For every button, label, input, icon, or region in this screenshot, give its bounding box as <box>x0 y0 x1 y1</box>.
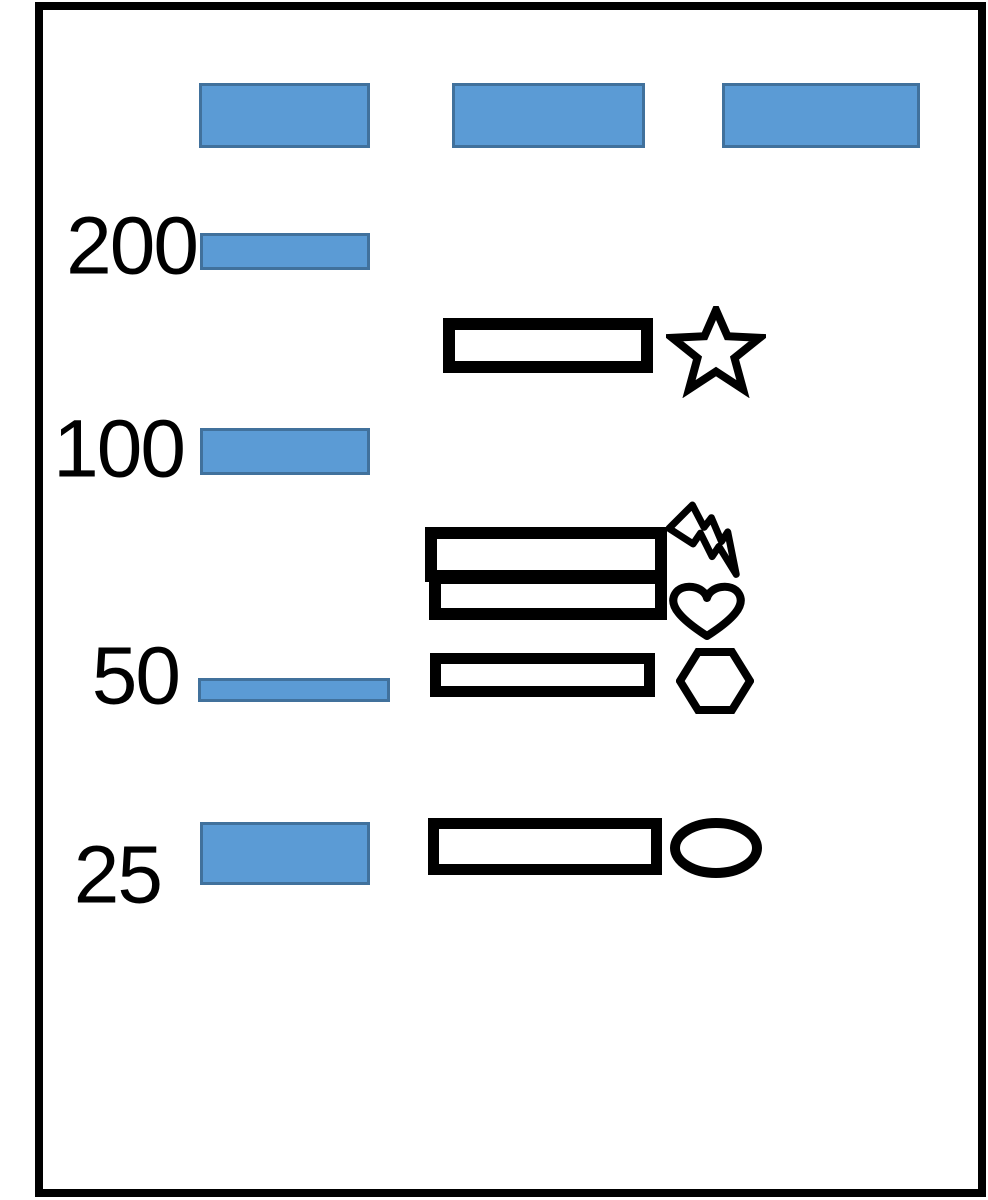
ladder-band-50 <box>198 678 390 702</box>
sample-band-ellipse <box>428 818 662 875</box>
ladder-band-25 <box>200 822 370 885</box>
ladder-label-50: 50 <box>92 635 179 717</box>
well-lane-3 <box>722 83 920 148</box>
sample-band-heart <box>429 572 667 620</box>
lightning-bolt-icon <box>662 498 756 592</box>
well-lane-1 <box>199 83 370 148</box>
ellipse-icon <box>668 816 764 880</box>
gel-electrophoresis-diagram: 2001005025 <box>0 0 988 1200</box>
hexagon-icon <box>676 646 754 716</box>
sample-band-hexagon <box>430 653 655 697</box>
ladder-label-25: 25 <box>74 834 161 916</box>
star-icon <box>666 306 766 398</box>
ladder-band-200 <box>200 233 370 270</box>
ladder-band-100 <box>200 428 370 475</box>
ladder-label-200: 200 <box>66 205 197 287</box>
ladder-label-100: 100 <box>53 408 184 490</box>
heart-icon <box>668 582 746 642</box>
sample-band-star <box>443 318 653 373</box>
well-lane-2 <box>452 83 645 148</box>
